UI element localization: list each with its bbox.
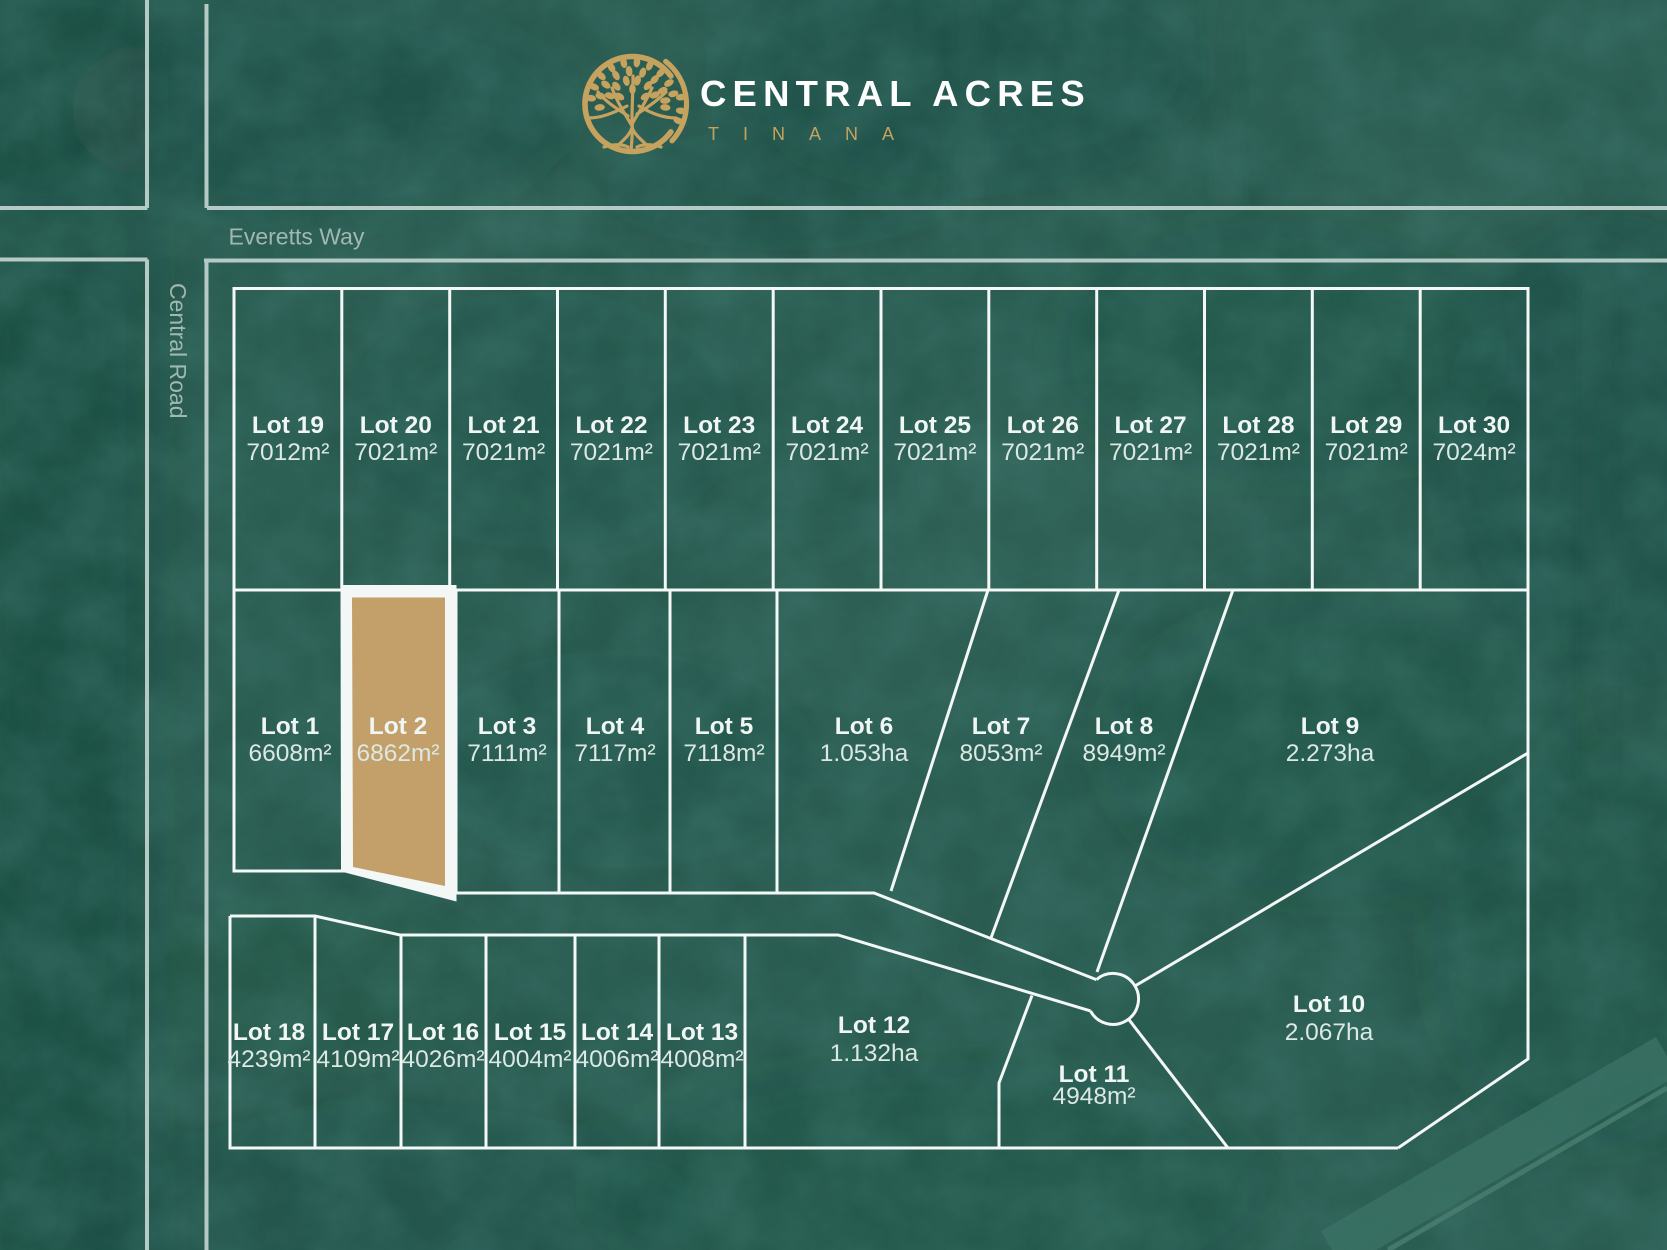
svg-text:Lot 27: Lot 27 [1115, 412, 1187, 439]
svg-text:7021m²: 7021m² [678, 439, 761, 466]
svg-text:Lot 8: Lot 8 [1095, 713, 1154, 740]
svg-text:Lot 12: Lot 12 [838, 1012, 910, 1039]
svg-text:Lot 1: Lot 1 [261, 713, 320, 740]
svg-text:Lot 25: Lot 25 [899, 412, 971, 439]
svg-text:2.067ha: 2.067ha [1285, 1019, 1374, 1046]
svg-text:6862m²: 6862m² [356, 740, 439, 767]
svg-text:7021m²: 7021m² [1217, 439, 1300, 466]
svg-text:4239m²: 4239m² [227, 1046, 310, 1073]
svg-text:4109m²: 4109m² [316, 1046, 399, 1073]
svg-text:Lot 26: Lot 26 [1007, 412, 1079, 439]
svg-text:7021m²: 7021m² [462, 439, 545, 466]
svg-text:7021m²: 7021m² [1325, 439, 1408, 466]
svg-text:CENTRAL ACRES: CENTRAL ACRES [700, 73, 1091, 114]
svg-text:7021m²: 7021m² [354, 439, 437, 466]
svg-text:7118m²: 7118m² [683, 740, 764, 767]
svg-text:Lot 5: Lot 5 [695, 713, 754, 740]
svg-text:8053m²: 8053m² [959, 740, 1042, 767]
svg-text:Lot 23: Lot 23 [683, 412, 755, 439]
svg-text:Lot 4: Lot 4 [586, 713, 645, 740]
svg-text:Lot 16: Lot 16 [407, 1019, 479, 1046]
svg-text:TINANA: TINANA [708, 124, 918, 144]
svg-text:4026m²: 4026m² [401, 1046, 484, 1073]
svg-text:Lot 14: Lot 14 [581, 1019, 654, 1046]
svg-text:1.132ha: 1.132ha [830, 1040, 919, 1067]
svg-text:7117m²: 7117m² [574, 740, 655, 767]
svg-text:4004m²: 4004m² [488, 1046, 571, 1073]
svg-text:Lot 21: Lot 21 [468, 412, 540, 439]
svg-text:7024m²: 7024m² [1433, 439, 1516, 466]
svg-text:2.273ha: 2.273ha [1286, 740, 1375, 767]
svg-text:Lot 29: Lot 29 [1330, 412, 1402, 439]
svg-text:Lot 19: Lot 19 [252, 412, 324, 439]
svg-text:Lot 9: Lot 9 [1301, 713, 1360, 740]
svg-text:Lot 13: Lot 13 [666, 1019, 738, 1046]
svg-text:Lot 3: Lot 3 [478, 713, 537, 740]
svg-text:Lot 7: Lot 7 [972, 713, 1031, 740]
svg-text:7021m²: 7021m² [570, 439, 653, 466]
svg-text:Lot 2: Lot 2 [369, 713, 428, 740]
svg-text:Lot 22: Lot 22 [575, 412, 647, 439]
svg-text:Lot 6: Lot 6 [835, 713, 894, 740]
svg-text:6608m²: 6608m² [248, 740, 331, 767]
svg-text:Lot 10: Lot 10 [1293, 991, 1365, 1018]
svg-text:7111m²: 7111m² [467, 740, 546, 767]
svg-text:7021m²: 7021m² [893, 439, 976, 466]
svg-text:4008m²: 4008m² [660, 1046, 743, 1073]
svg-text:Lot 17: Lot 17 [322, 1019, 394, 1046]
svg-text:Lot 18: Lot 18 [233, 1019, 305, 1046]
svg-text:8949m²: 8949m² [1082, 740, 1165, 767]
svg-text:7021m²: 7021m² [786, 439, 869, 466]
svg-text:Lot 24: Lot 24 [791, 412, 864, 439]
svg-text:1.053ha: 1.053ha [820, 740, 909, 767]
svg-text:Lot 28: Lot 28 [1222, 412, 1294, 439]
svg-text:4006m²: 4006m² [575, 1046, 658, 1073]
svg-text:Lot 20: Lot 20 [360, 412, 432, 439]
svg-text:7021m²: 7021m² [1001, 439, 1084, 466]
svg-text:4948m²: 4948m² [1052, 1083, 1135, 1110]
svg-text:Central Road: Central Road [165, 283, 191, 419]
svg-text:7021m²: 7021m² [1109, 439, 1192, 466]
svg-text:7012m²: 7012m² [246, 439, 329, 466]
svg-text:Everetts Way: Everetts Way [229, 224, 365, 250]
svg-text:Lot 30: Lot 30 [1438, 412, 1510, 439]
svg-text:Lot 15: Lot 15 [494, 1019, 566, 1046]
